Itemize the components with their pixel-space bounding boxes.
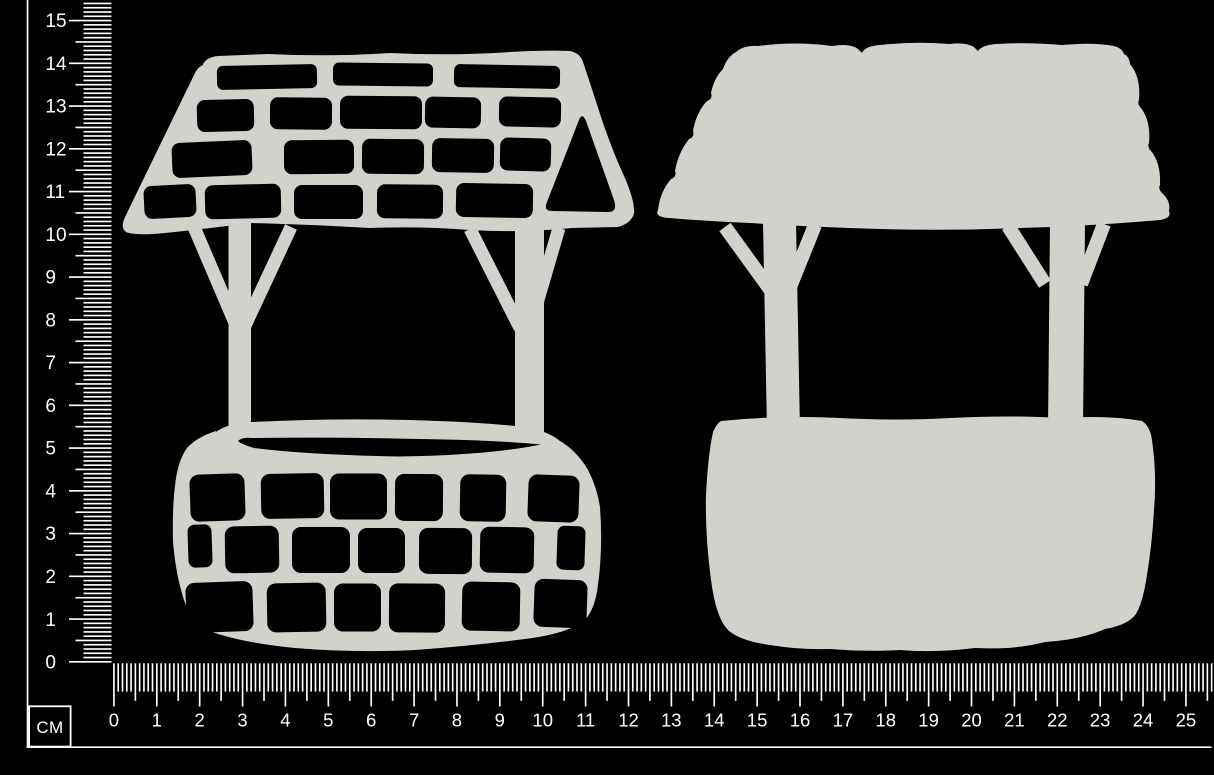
svg-text:9: 9 <box>495 710 505 731</box>
svg-text:17: 17 <box>833 710 854 731</box>
svg-text:9: 9 <box>45 268 56 289</box>
svg-text:16: 16 <box>790 710 811 731</box>
svg-text:24: 24 <box>1133 710 1154 731</box>
svg-text:12: 12 <box>45 140 66 161</box>
svg-text:7: 7 <box>45 353 56 374</box>
svg-text:6: 6 <box>366 710 376 731</box>
svg-text:0: 0 <box>109 710 119 731</box>
svg-text:7: 7 <box>409 710 419 731</box>
svg-text:6: 6 <box>45 396 56 417</box>
svg-text:5: 5 <box>323 710 333 731</box>
svg-text:11: 11 <box>576 710 595 731</box>
svg-text:4: 4 <box>45 482 56 503</box>
svg-text:8: 8 <box>45 311 56 332</box>
svg-text:14: 14 <box>704 710 725 731</box>
svg-text:10: 10 <box>532 710 553 731</box>
svg-text:14: 14 <box>45 54 67 75</box>
svg-text:5: 5 <box>45 439 56 460</box>
svg-text:13: 13 <box>45 97 66 118</box>
svg-text:1: 1 <box>152 710 162 731</box>
svg-text:2: 2 <box>45 567 56 588</box>
svg-text:15: 15 <box>45 11 66 32</box>
svg-text:18: 18 <box>875 710 896 731</box>
svg-text:3: 3 <box>45 524 56 545</box>
svg-text:1: 1 <box>45 610 56 631</box>
svg-text:13: 13 <box>661 710 682 731</box>
svg-text:23: 23 <box>1090 710 1111 731</box>
svg-text:20: 20 <box>961 710 982 731</box>
svg-text:0: 0 <box>45 653 56 674</box>
svg-text:3: 3 <box>237 710 247 731</box>
svg-text:15: 15 <box>747 710 768 731</box>
svg-text:4: 4 <box>280 710 290 731</box>
svg-text:CM: CM <box>36 718 63 737</box>
svg-text:2: 2 <box>195 710 205 731</box>
svg-text:19: 19 <box>918 710 939 731</box>
svg-text:25: 25 <box>1176 710 1197 731</box>
svg-text:22: 22 <box>1047 710 1068 731</box>
svg-text:21: 21 <box>1004 710 1025 731</box>
svg-text:10: 10 <box>45 225 66 246</box>
svg-text:12: 12 <box>618 710 639 731</box>
svg-text:8: 8 <box>452 710 462 731</box>
svg-text:11: 11 <box>45 182 65 203</box>
